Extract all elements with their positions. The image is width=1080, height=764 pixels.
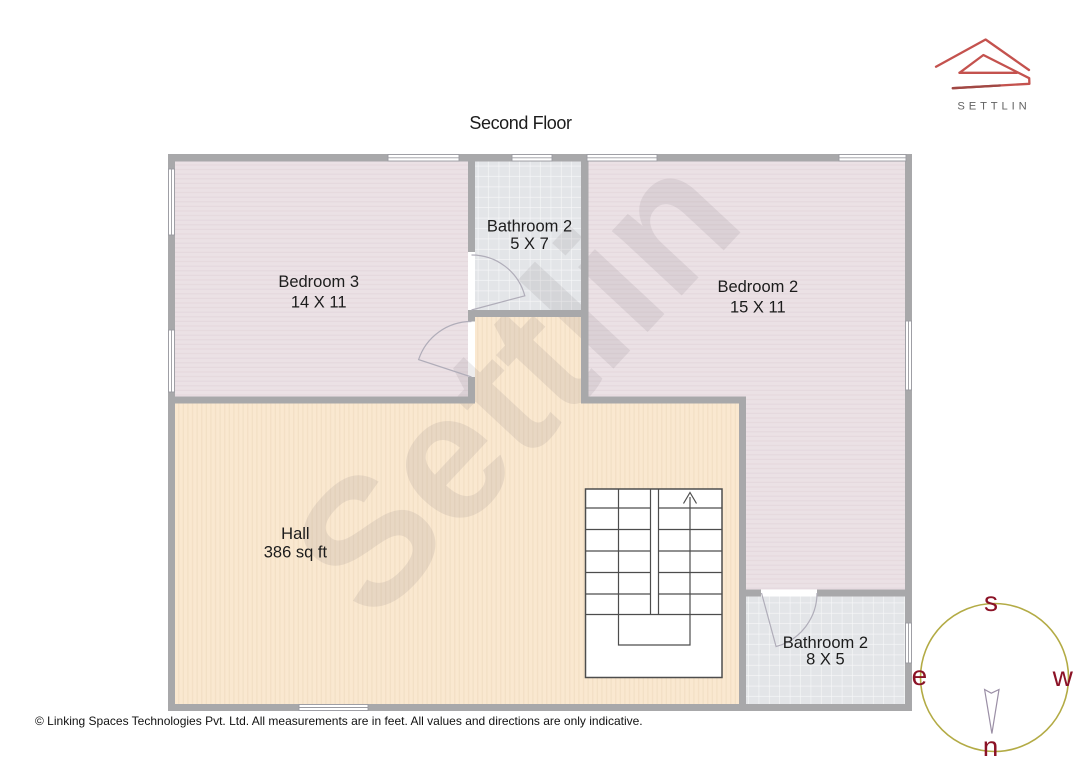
svg-text:© Linking Spaces Technologies: © Linking Spaces Technologies Pvt. Ltd. … (35, 714, 643, 728)
svg-text:n: n (983, 731, 999, 762)
svg-text:Bedroom 2: Bedroom 2 (717, 278, 798, 296)
svg-text:15 X 11: 15 X 11 (730, 298, 786, 316)
svg-text:Bathroom 2: Bathroom 2 (487, 218, 572, 236)
svg-text:e: e (912, 660, 928, 691)
svg-text:8 X 5: 8 X 5 (806, 651, 845, 669)
svg-text:5 X 7: 5 X 7 (510, 235, 549, 253)
svg-text:Hall: Hall (281, 525, 309, 543)
svg-text:Bedroom 3: Bedroom 3 (278, 273, 359, 291)
svg-text:386 sq ft: 386 sq ft (264, 544, 328, 562)
svg-text:Second Floor: Second Floor (469, 113, 572, 133)
svg-text:14 X 11: 14 X 11 (291, 294, 347, 312)
svg-text:SETTLIN: SETTLIN (957, 101, 1030, 113)
svg-text:s: s (984, 586, 998, 617)
svg-text:w: w (1052, 661, 1074, 692)
svg-text:Bathroom 2: Bathroom 2 (783, 634, 868, 652)
